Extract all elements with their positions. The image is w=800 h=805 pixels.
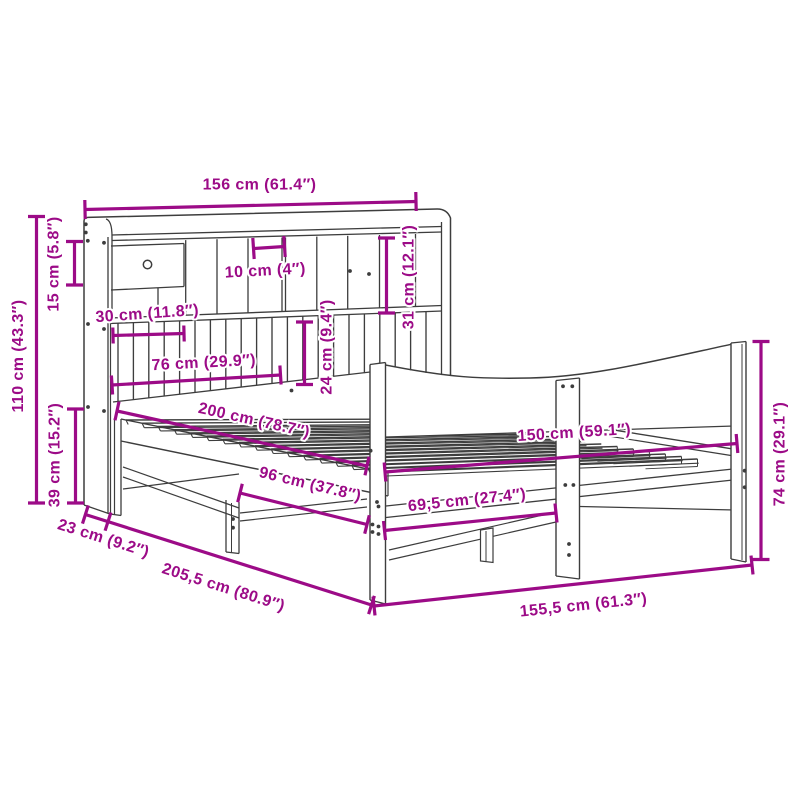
svg-text:24 cm (9.4″): 24 cm (9.4″) bbox=[319, 299, 336, 394]
svg-text:155,5 cm (61.3″): 155,5 cm (61.3″) bbox=[519, 590, 648, 620]
svg-text:69,5 cm (27.4″): 69,5 cm (27.4″) bbox=[407, 486, 527, 515]
svg-text:30 cm (11.8″): 30 cm (11.8″) bbox=[95, 302, 200, 326]
svg-text:156 cm (61.4″): 156 cm (61.4″) bbox=[203, 177, 317, 194]
svg-text:110 cm (43.3″): 110 cm (43.3″) bbox=[10, 300, 27, 413]
svg-text:74 cm (29.1″): 74 cm (29.1″) bbox=[772, 402, 789, 506]
svg-text:15 cm (5.8″): 15 cm (5.8″) bbox=[46, 216, 63, 311]
svg-text:23 cm (9.2″): 23 cm (9.2″) bbox=[55, 516, 151, 561]
svg-text:205,5 cm (80.9″): 205,5 cm (80.9″) bbox=[160, 560, 287, 615]
svg-text:96 cm (37.8″): 96 cm (37.8″) bbox=[257, 464, 363, 505]
svg-text:31 cm (12.1″): 31 cm (12.1″) bbox=[401, 225, 418, 329]
svg-text:10 cm (4″): 10 cm (4″) bbox=[224, 260, 306, 281]
svg-text:39 cm (15.2″): 39 cm (15.2″) bbox=[47, 403, 64, 507]
